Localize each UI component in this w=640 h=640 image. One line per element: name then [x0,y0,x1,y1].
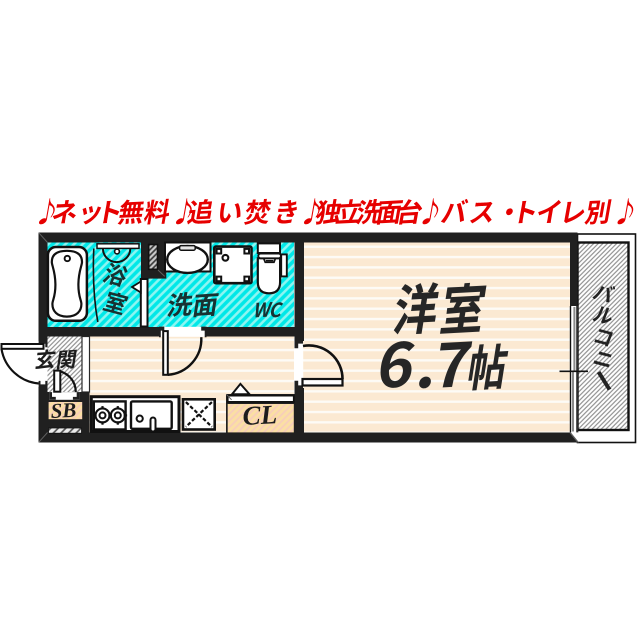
svg-text:SB: SB [50,398,77,423]
svg-text:CL: CL [242,399,278,431]
